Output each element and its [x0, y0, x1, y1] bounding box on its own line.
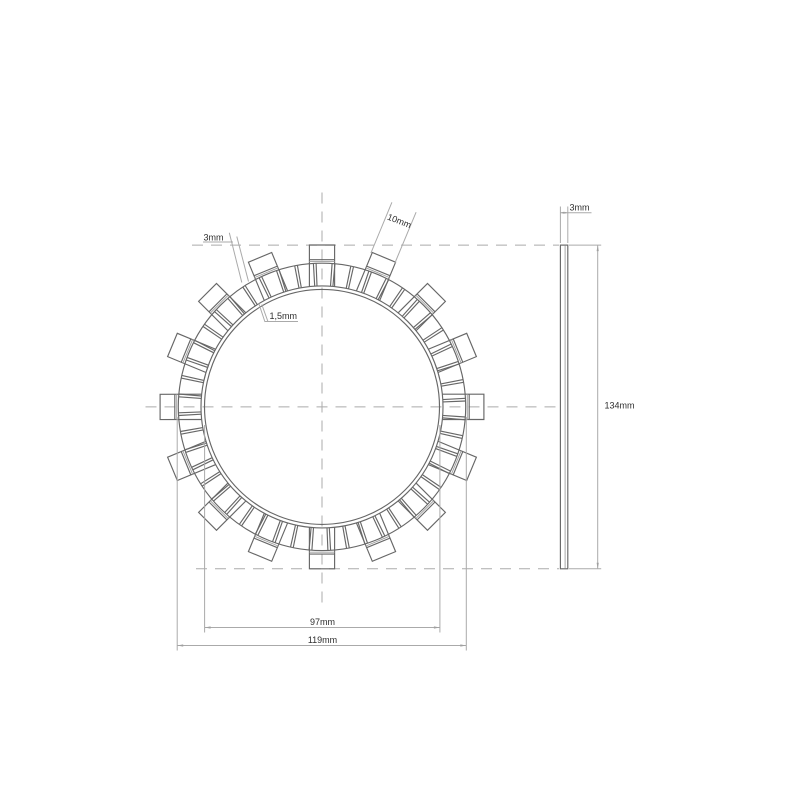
svg-text:97mm: 97mm — [310, 617, 335, 627]
svg-text:119mm: 119mm — [308, 635, 337, 645]
svg-text:1,5mm: 1,5mm — [270, 311, 298, 321]
svg-text:3mm: 3mm — [204, 232, 224, 242]
svg-text:10mm: 10mm — [386, 212, 413, 230]
svg-text:3mm: 3mm — [570, 203, 590, 213]
svg-text:134mm: 134mm — [605, 400, 635, 410]
